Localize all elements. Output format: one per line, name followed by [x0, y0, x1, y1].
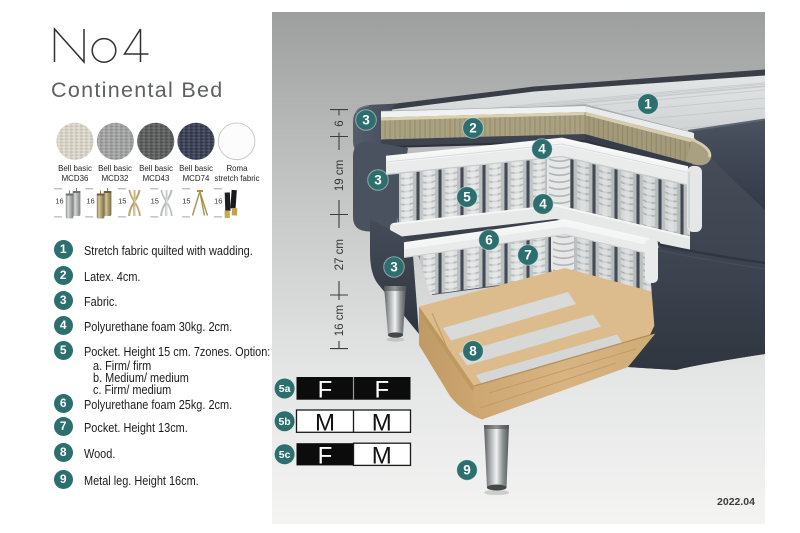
svg-text:6: 6 — [334, 120, 346, 126]
svg-text:5: 5 — [463, 190, 471, 205]
svg-text:15: 15 — [151, 196, 159, 205]
svg-text:M: M — [372, 409, 392, 436]
svg-text:1: 1 — [644, 97, 652, 112]
svg-text:27 cm: 27 cm — [334, 239, 346, 270]
svg-text:F: F — [318, 442, 333, 469]
svg-text:16: 16 — [55, 196, 63, 205]
svg-text:2022.04: 2022.04 — [717, 496, 755, 508]
svg-text:3: 3 — [390, 260, 398, 275]
svg-text:16 cm: 16 cm — [334, 305, 346, 336]
svg-text:16: 16 — [86, 196, 94, 205]
svg-text:M: M — [372, 442, 392, 469]
svg-text:15: 15 — [118, 196, 126, 205]
svg-text:2: 2 — [469, 121, 477, 136]
svg-text:4: 4 — [539, 197, 547, 212]
svg-text:M: M — [315, 409, 335, 436]
svg-text:6: 6 — [485, 233, 493, 248]
svg-text:19 cm: 19 cm — [334, 160, 346, 191]
svg-text:15: 15 — [182, 196, 190, 205]
svg-text:4: 4 — [538, 142, 546, 157]
svg-text:7: 7 — [524, 248, 532, 263]
svg-text:5b: 5b — [278, 416, 290, 428]
svg-text:16: 16 — [214, 196, 222, 205]
svg-text:F: F — [318, 376, 333, 403]
svg-text:8: 8 — [469, 344, 477, 359]
svg-text:3: 3 — [374, 173, 382, 188]
svg-text:5a: 5a — [279, 383, 291, 395]
svg-text:3: 3 — [362, 113, 370, 128]
svg-text:F: F — [374, 376, 389, 403]
svg-text:9: 9 — [463, 463, 471, 478]
svg-text:5c: 5c — [279, 449, 291, 461]
